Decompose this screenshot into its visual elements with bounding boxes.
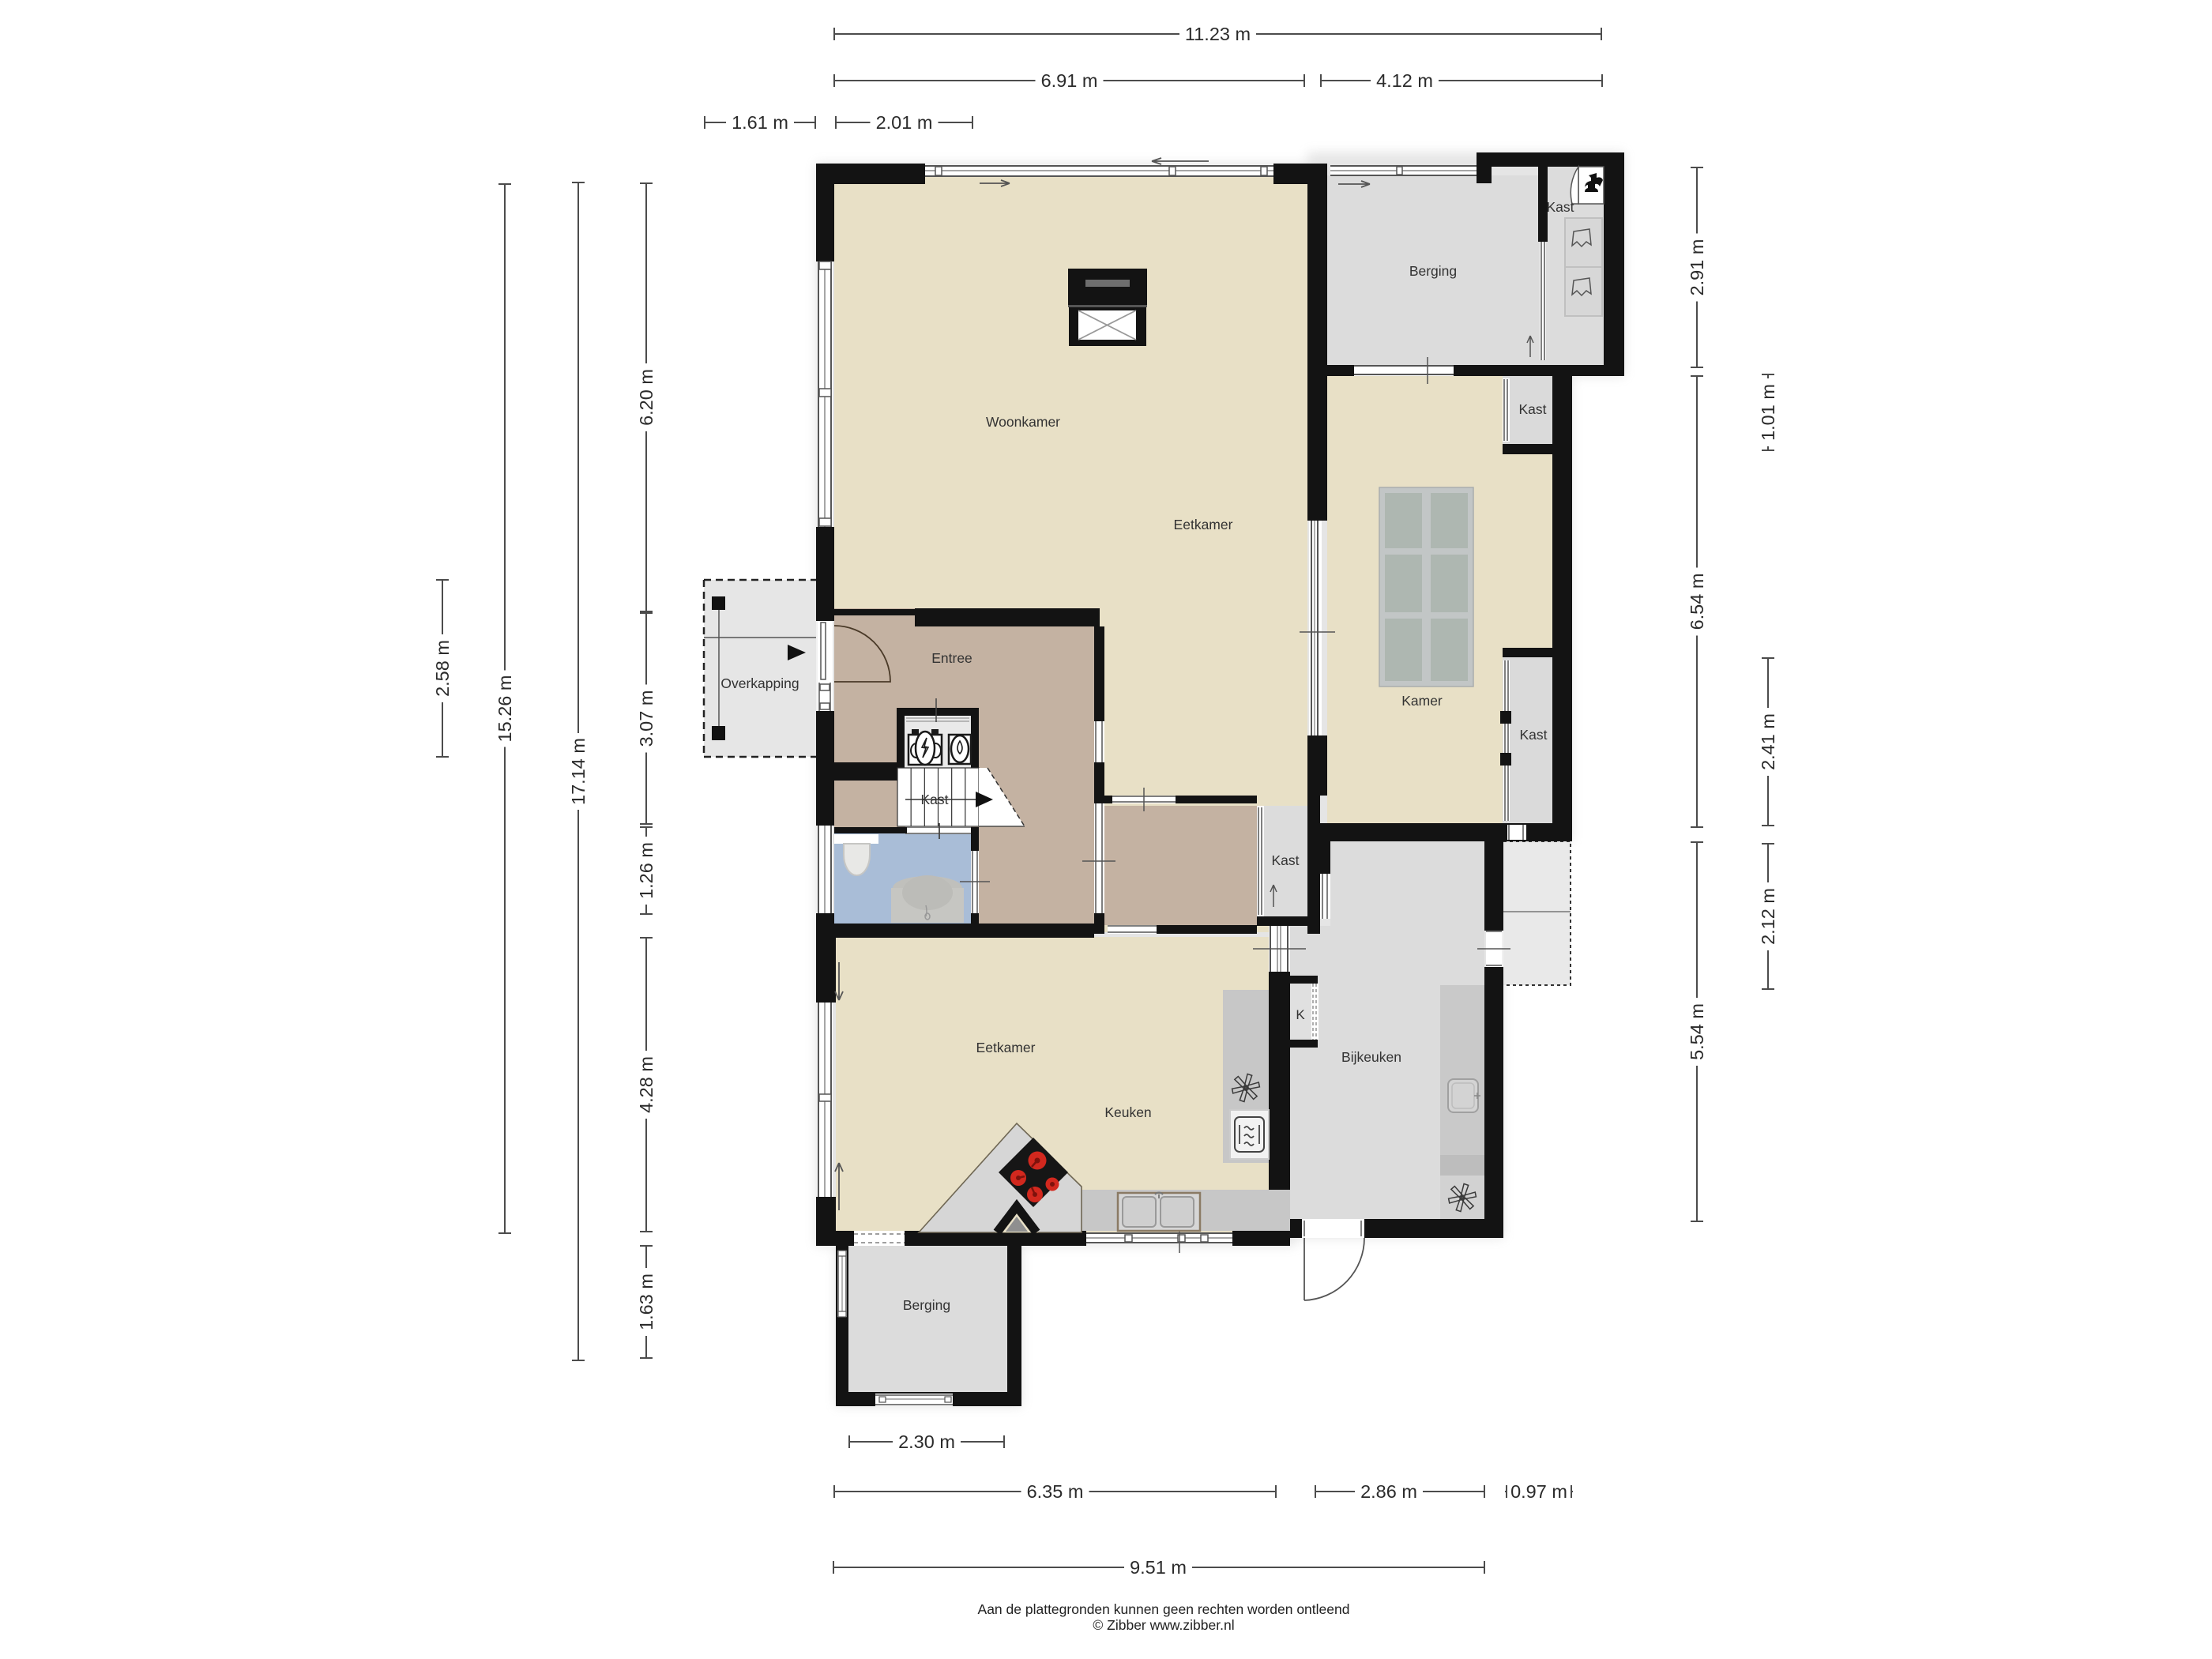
- svg-text:6.54 m: 6.54 m: [1687, 574, 1707, 630]
- svg-text:4.28 m: 4.28 m: [636, 1056, 656, 1113]
- svg-text:6.35 m: 6.35 m: [1027, 1481, 1084, 1502]
- svg-text:Entree: Entree: [931, 650, 972, 666]
- svg-text:Eetkamer: Eetkamer: [1174, 517, 1233, 532]
- svg-text:Woonkamer: Woonkamer: [986, 414, 1060, 430]
- svg-text:2.86 m: 2.86 m: [1360, 1481, 1417, 1502]
- svg-text:6.20 m: 6.20 m: [636, 369, 656, 426]
- svg-text:Keuken: Keuken: [1104, 1104, 1151, 1120]
- svg-text:Bijkeuken: Bijkeuken: [1341, 1049, 1401, 1065]
- svg-text:9.51 m: 9.51 m: [1130, 1557, 1187, 1578]
- svg-text:2.30 m: 2.30 m: [898, 1431, 955, 1452]
- svg-text:6.91 m: 6.91 m: [1041, 70, 1098, 91]
- svg-text:Kast: Kast: [1271, 852, 1299, 868]
- svg-text:15.26 m: 15.26 m: [495, 675, 515, 743]
- svg-text:Berging: Berging: [903, 1297, 950, 1313]
- svg-text:4.12 m: 4.12 m: [1376, 70, 1433, 91]
- svg-text:K: K: [1296, 1007, 1305, 1022]
- svg-text:2.12 m: 2.12 m: [1758, 888, 1778, 945]
- svg-text:1.01 m: 1.01 m: [1758, 384, 1778, 441]
- svg-text:Kast: Kast: [920, 792, 948, 807]
- svg-text:Kamer: Kamer: [1401, 693, 1443, 709]
- svg-text:0.97 m: 0.97 m: [1510, 1481, 1567, 1502]
- svg-text:1.26 m: 1.26 m: [636, 842, 656, 899]
- svg-text:2.91 m: 2.91 m: [1687, 239, 1707, 296]
- svg-text:Aan de plattegronden kunnen ge: Aan de plattegronden kunnen geen rechten…: [978, 1601, 1350, 1617]
- svg-text:17.14 m: 17.14 m: [568, 738, 589, 805]
- svg-text:2.41 m: 2.41 m: [1758, 713, 1778, 770]
- svg-text:Kast: Kast: [1519, 727, 1547, 743]
- svg-text:3.07 m: 3.07 m: [636, 690, 656, 747]
- svg-text:11.23 m: 11.23 m: [1185, 24, 1251, 44]
- svg-text:Kast: Kast: [1546, 199, 1574, 215]
- svg-text:© Zibber www.zibber.nl: © Zibber www.zibber.nl: [1093, 1617, 1234, 1633]
- svg-text:Kast: Kast: [1518, 401, 1546, 417]
- svg-text:2.01 m: 2.01 m: [876, 112, 933, 133]
- svg-text:Eetkamer: Eetkamer: [976, 1040, 1036, 1055]
- svg-text:5.54 m: 5.54 m: [1687, 1003, 1707, 1060]
- svg-text:Overkapping: Overkapping: [720, 675, 799, 691]
- svg-text:1.63 m: 1.63 m: [636, 1273, 656, 1330]
- svg-text:1.61 m: 1.61 m: [732, 112, 788, 133]
- svg-text:2.58 m: 2.58 m: [432, 640, 453, 697]
- svg-text:Berging: Berging: [1409, 263, 1457, 279]
